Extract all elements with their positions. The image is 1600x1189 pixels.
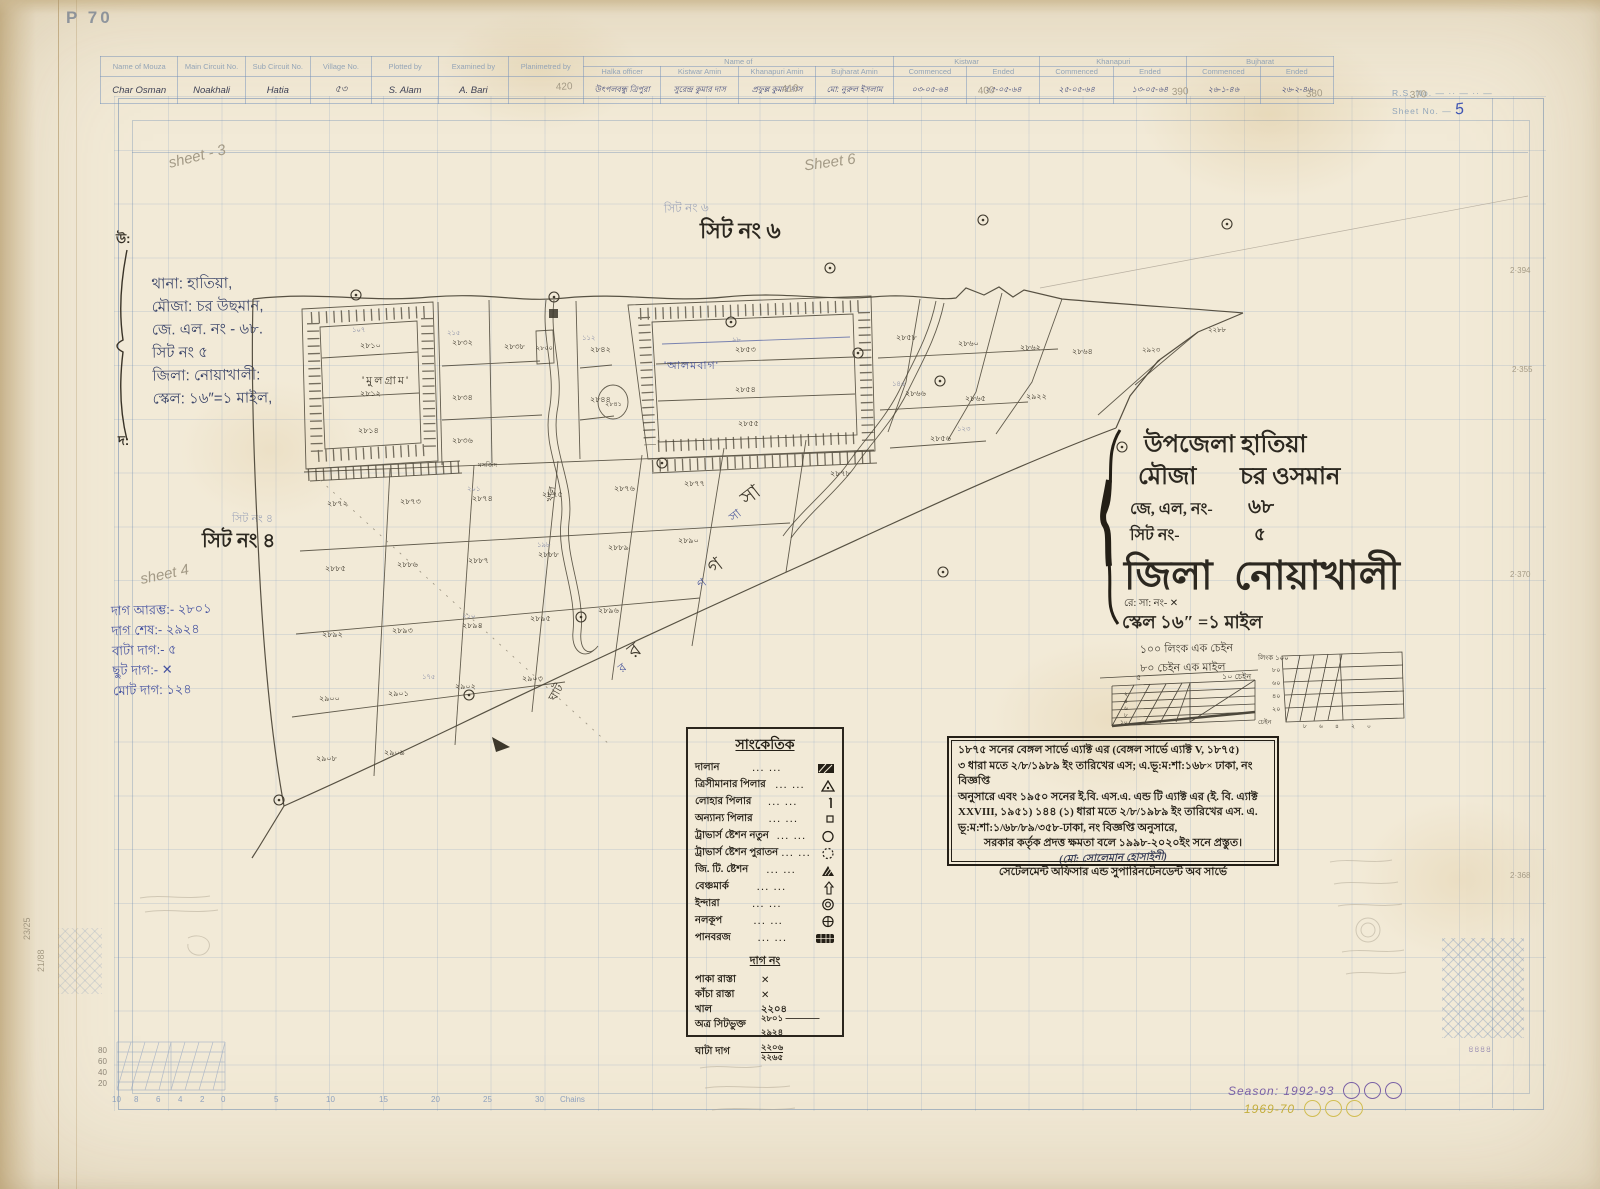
total-dag: মোট দাগ: ১২৪: [113, 679, 214, 702]
season-note-row-old: 1969-70: [1244, 1100, 1363, 1118]
sheet-line: সিট নং ৫: [152, 340, 272, 364]
main-circuit-value: Noakhali: [178, 77, 245, 104]
sheet-no-dash: —: [1442, 106, 1452, 116]
district-line: জিলা: নোয়াখালী:: [152, 363, 272, 387]
season-circle: [1364, 1082, 1381, 1099]
rs-no-dashes: — ·· — ·· —: [1436, 88, 1493, 98]
group-header-name-of: Name of: [583, 57, 893, 67]
plate-number: P 70: [66, 8, 113, 28]
notice-line: ৩ ধারা মতে ২/৮/১৯৮৯ ইং তারিখের এস; এ.ভূ:…: [958, 759, 1268, 790]
dag-item: কাঁচা রাস্তা✕: [695, 988, 835, 1003]
legend-item: ট্রাভার্স ষ্টেশন নতুন... ...: [695, 828, 835, 845]
khanapuri-commenced-value: ২৫-০৫-৬৪: [1040, 77, 1113, 104]
well-icon: [815, 898, 835, 911]
legend-item: ইন্দারা... ...: [695, 896, 835, 913]
legend-title: সাংকেতিক: [695, 733, 835, 757]
subcol-header: Khanapuri Amin: [738, 67, 815, 77]
legend-item: জি. টি. ষ্টেশন... ...: [695, 862, 835, 879]
building-hatch-icon: [815, 763, 835, 774]
khanapuri-amin-value: প্রফুল্ল কুমার দাস: [738, 77, 815, 104]
season-1992-93: Season: 1992-93: [1228, 1084, 1334, 1098]
sheet-fold-line: [76, 0, 77, 1189]
season-circle-old: [1325, 1100, 1342, 1117]
season-circle-old: [1346, 1100, 1363, 1117]
col-header: Plotted by: [372, 57, 439, 77]
subcol-header: Ended: [1113, 67, 1186, 77]
north-marker: উ:: [116, 230, 130, 251]
season-note-row: Season: 1992-93: [1228, 1082, 1402, 1100]
sheet-no-label: Sheet No.: [1392, 106, 1439, 116]
legend-item: নলকূপ... ...: [695, 913, 835, 930]
dag-start: দাগ আরম্ভ:- ২৮০১: [111, 599, 212, 622]
bujharat-amin-value: মো: নুরুল ইসলাম: [816, 77, 893, 104]
notice-line: XXVIII, ১৯৫১) ১৪৪ (১) ধারা মতে ২/৮/১৯৮৯ …: [958, 805, 1268, 821]
scale-line: স্কেল: ১৬″=১ মাইল,: [152, 386, 272, 410]
subcol-header: Commenced: [893, 67, 966, 77]
sheet-no-handwritten: 5: [1454, 100, 1466, 119]
subcol-header: Bujharat Amin: [816, 67, 893, 77]
margin-scale-number: 20: [98, 1079, 107, 1088]
left-margin-fraction: 21/88: [36, 949, 46, 972]
group-header-khanapuri: Khanapuri: [1040, 57, 1187, 67]
subcol-header: Commenced: [1040, 67, 1113, 77]
district-value: নোয়াখালী: [1234, 544, 1400, 611]
group-header-kistwar: Kistwar: [893, 57, 1040, 67]
scanned-cadastral-map-sheet: { "page": { "p_number": "P 70" }, "heade…: [0, 0, 1600, 1189]
rs-sheet-block: R.S. No. — ·· — ·· — Sheet No. — 5: [1392, 88, 1552, 119]
legend-item: অন্যান্য পিলার... ...: [695, 811, 835, 828]
chhut-dag: ছুট দাগ:- ✕: [112, 659, 213, 682]
jl-label: জে, এল, নং-: [1130, 496, 1213, 523]
dag-number-heading: দাগ নং: [695, 952, 835, 971]
thana-line: থানা: হাতিয়া,: [151, 271, 271, 295]
legend-item: লোহার পিলার... ...: [695, 794, 835, 811]
subcol-header: Ended: [967, 67, 1040, 77]
upazila-value: হাতিয়া: [1241, 432, 1307, 458]
iron-pillar-icon: [815, 797, 835, 809]
scale-note-links: ১০০ লিংক এক চেইন: [1140, 639, 1233, 660]
group-header-bujharat: Bujharat: [1187, 57, 1334, 67]
season-circle-old: [1304, 1100, 1321, 1117]
mouza-line: মৌজা: চর উছমান,: [152, 294, 272, 318]
season-circle: [1343, 1082, 1360, 1099]
bata-dag-item: ঘাটা দাগ ২২০৬ ২২৬৫: [695, 1045, 835, 1060]
margin-crosshatch-block: [1442, 938, 1524, 1038]
mouza-value: Char Osman: [101, 77, 178, 104]
upazila-label: উপজেলা: [1144, 432, 1235, 458]
col-header: Planimetred by: [508, 57, 583, 77]
margin-scale-number: 60: [98, 1057, 107, 1066]
mouza-label: মৌজা: [1138, 458, 1196, 498]
bujharat-ended-value: ২৬-২-৪৬: [1260, 77, 1333, 104]
khanapuri-ended-value: ১৩-০৫-৬৪: [1113, 77, 1186, 104]
col-header: Village No.: [310, 57, 371, 77]
subcol-header: Halka officer: [583, 67, 660, 77]
season-circle: [1385, 1082, 1402, 1099]
traverse-station-old-icon: [815, 847, 835, 860]
margin-crosshatch-block-left: [58, 928, 102, 994]
col-header: Main Circuit No.: [178, 57, 245, 77]
tri-boundary-pillar-icon: [815, 780, 835, 792]
legend-item: বেঞ্চমার্ক... ...: [695, 879, 835, 896]
planimetred-by-value: [508, 77, 583, 104]
kistwar-amin-value: সুরেন্দ্র কুমার দাস: [661, 77, 738, 104]
dag-item: অত্র সিটভুক্ত২৮০১ ———— ২৯২৪: [695, 1018, 835, 1033]
other-pillar-icon: [815, 814, 835, 825]
sheet4-label: সিট নং ৪: [202, 526, 275, 559]
col-header: Examined by: [439, 57, 508, 77]
margin-scale-number: 40: [98, 1068, 107, 1077]
traverse-station-new-icon: [815, 830, 835, 843]
legend-item: ট্রাভার্স ষ্টেশন পুরাতন... ...: [695, 845, 835, 862]
halka-officer-value: উৎপলবন্ধু ত্রিপুরা: [583, 77, 660, 104]
scale-note-chains: ৮০ চেইন এক মাইল: [1140, 658, 1233, 679]
notice-line: অনুসারে এবং ১৯৫০ সনের ই.বি. এস.এ. এন্ড ট…: [958, 790, 1268, 806]
kistwar-ended-value: ২৫-০৫-৬৪: [967, 77, 1040, 104]
south-marker: দ:: [118, 432, 129, 453]
margin-scale-number: 80: [98, 1046, 107, 1055]
benchmark-icon: [815, 881, 835, 895]
kistwar-commenced-value: ০৩-০৫-৬৪: [893, 77, 966, 104]
dag-statistics-block: দাগ আরম্ভ:- ২৮০১ দাগ শেষ:- ২৯২৪ বাটা দাগ…: [111, 599, 214, 702]
sub-circuit-value: Hatia: [245, 77, 310, 104]
bujharat-commenced-value: ২৬-১-৪৬: [1187, 77, 1260, 104]
bata-dag: বাটা দাগ:- ৫: [112, 639, 213, 662]
gazette-notice-box: ১৮৭৫ সনের বেঙ্গল সার্ভে এ্যাক্ট এর (বেঙ্…: [947, 736, 1279, 866]
notice-line: ভূ:ম:শা:১/৬৮/৮৯/৩৫৮-ঢাকা, নং বিজ্ঞপ্তি অ…: [958, 821, 1268, 837]
dag-end: দাগ শেষ:- ২৯২৪: [111, 619, 212, 642]
scan-top-edge: [0, 0, 1600, 14]
bata-dag-fraction: ২২০৬ ২২৬৫: [761, 1043, 783, 1062]
tube-well-icon: [815, 915, 835, 928]
survey-header-table: Name of Mouza Main Circuit No. Sub Circu…: [100, 56, 1334, 104]
legend-box: সাংকেতিক দালান... ... ত্রিসীমানার পিলার.…: [686, 727, 844, 1037]
legend-item: পানবরজ... ...: [695, 930, 835, 947]
notice-line: ১৮৭৫ সনের বেঙ্গল সার্ভে এ্যাক্ট এর (বেঙ্…: [958, 743, 1268, 759]
legend-item: ত্রিসীমানার পিলার... ...: [695, 777, 835, 794]
plotted-by-value: S. Alam: [372, 77, 439, 104]
jl-line: জে. এল. নং - ৬৮.: [152, 317, 272, 341]
legend-item: দালান... ...: [695, 760, 835, 777]
col-header: Sub Circuit No.: [245, 57, 310, 77]
sheet-fold-line: [58, 0, 59, 1189]
scan-left-edge: [0, 0, 36, 1189]
season-1969-70: 1969-70: [1244, 1102, 1295, 1116]
col-header: Name of Mouza: [101, 57, 178, 77]
subcol-header: Ended: [1260, 67, 1333, 77]
subcol-header: Kistwar Amin: [661, 67, 738, 77]
rs-no-label: R.S. No.: [1392, 88, 1432, 98]
marginal-annotation-block: থানা: হাতিয়া, মৌজা: চর উছমান, জে. এল. ন…: [151, 271, 272, 410]
pan-boroj-icon: [815, 933, 835, 944]
scale-notes: ১০০ লিংক এক চেইন ৮০ চেইন এক মাইল: [1140, 639, 1234, 679]
subcol-header: Commenced: [1187, 67, 1260, 77]
scale-statement: স্কেল ১৬″ =১ মাইল: [1122, 608, 1262, 639]
sheet6-label: সিট নং ৬: [700, 214, 781, 251]
examined-by-value: A. Bari: [439, 77, 508, 104]
dag-item: পাকা রাস্তা✕: [695, 973, 835, 988]
map-title-block: উপজেলা হাতিয়া মৌজা চর ওসমান জে, এল, নং-…: [1108, 424, 1428, 634]
village-no-value: ৫৩: [310, 77, 371, 104]
gt-station-icon: [815, 865, 835, 877]
